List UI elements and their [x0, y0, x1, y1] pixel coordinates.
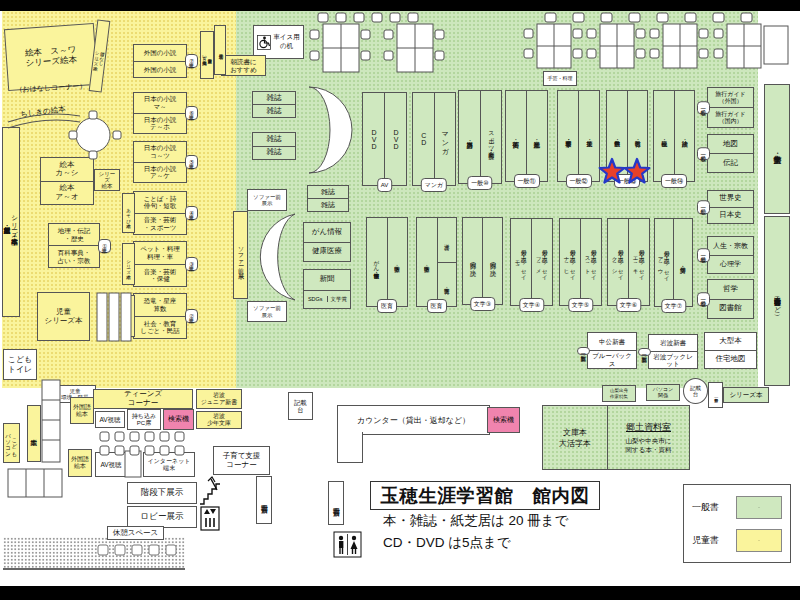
shinkan-tosho-2: 新刊図書: [328, 481, 344, 525]
shelf-ippan-11-col-0: 芸術・美術: [506, 91, 526, 181]
kisaidai-left-label: 記載 台: [289, 393, 312, 419]
chuko-shinsho: 中公新書ブルーバックス一般新書: [587, 332, 637, 369]
zasshi-rack-3-cell-0: 雑誌: [308, 186, 348, 198]
gaikokugo-ehon-2: 外国語 絵本: [68, 449, 92, 477]
shelf-ippan-10-col-0: 日本語・外国語: [459, 91, 480, 183]
shelf-iiku-2-tab: 医育: [427, 299, 447, 313]
shelf-travel-guide-tab: 一般⑮: [697, 101, 710, 115]
chuko-shinsho-cell-1: ブルーバックス: [588, 350, 636, 368]
asadoku-osusume: 朝読書に おすすめ: [221, 55, 266, 76]
shelf-bungaku-6-col-0: 日本の小説・エッセイ ク～シ: [608, 219, 628, 305]
ogata-bon-jutaku: 大型本住宅地図: [704, 332, 757, 369]
shelf-ippan-12-col-0: 手芸・料理・家事: [558, 91, 578, 181]
shelf-pet-side-label: シリーズ絵本: [122, 243, 135, 285]
shelf-travel-guide: 旅行ガイド （外国）旅行ガイド （国内）一般⑮: [707, 87, 754, 128]
loan-limit-av: CD・DVD は5点まで: [383, 534, 511, 552]
shelf-ippan-10: 日本語・外国語スポーツ・音楽・演劇一般⑩: [458, 90, 502, 184]
iwanami-junior-label: 岩波 ジュニア新書: [197, 390, 241, 408]
gaikokugo-ehon-1: 外国語 絵本: [70, 397, 94, 424]
shelf-foreign-novels-child-tab: 児童⑦: [185, 54, 198, 68]
shelf-travel-guide-cell-0: 旅行ガイド （外国）: [708, 88, 753, 107]
zasshi-rack-3: 雑誌雑誌: [307, 185, 349, 212]
shinkan-tosho-2-label: 新刊図書: [329, 482, 343, 524]
series-bon-green-label: シリーズ本: [724, 388, 768, 402]
kyodo-room-desc: 山梨や中央市に 関する本・資料: [626, 437, 672, 455]
shelf-kyoryu-tab: 児童②: [185, 309, 198, 323]
shelf-pet-tab: 児童③: [185, 257, 198, 271]
shelf-jinsei-cell-1: 心理学: [708, 255, 753, 274]
sofa-mae-tenji-1-label: ソファー前 展示: [248, 190, 286, 210]
shelf-bungaku-5: 日本の小説・エッセイ ナ～ヒ日本の小説・エッセイ ス～ト文学⑤: [559, 218, 602, 306]
kaidan-shita-tenji-label: 階段下展示: [128, 483, 196, 503]
sofa-mae-tenji-1: ソファー前 展示: [247, 189, 287, 211]
bottom-letterbox-bar: [0, 586, 800, 600]
shelf-ippan-14-tab: 一般⑭: [661, 174, 687, 188]
shelf-pet-cell-1: 音楽・芸術 ・保健: [134, 264, 186, 287]
chuko-shinsho-tab: 一般新書: [577, 347, 590, 355]
shelf-jp-novels-ma-cell-0: 日本の小説 マ～: [134, 93, 186, 113]
shelf-sekaishi-cell-1: 日本史: [708, 207, 753, 224]
internet-tanmatsu-label: インターネット 端末: [144, 453, 194, 476]
shelf-series-tenji-label: シリーズ本・点字絵本・布絵本・ 紙芝居・大型紙芝居・大型絵本: [3, 128, 19, 316]
kyukei-space: 休憩スペース: [107, 526, 164, 540]
shelf-jp-novels-ko: 日本の小説 コ～ツ日本の小説 ア～ケ児童⑤: [133, 141, 187, 183]
shelf-jp-novels-ko-tab: 児童⑤: [185, 155, 198, 169]
shelf-bungaku-4: 日本の小説・エッセイ モ～日本の小説・エッセイ フ～メ文学④: [510, 218, 553, 306]
shelf-kotoba-side-label: あそび絵本: [122, 193, 135, 233]
shelf-bungaku-7-col-0: 日本の小説・エッセイ ア～ウ: [655, 219, 673, 306]
shelf-ippan-10-col-1: スポーツ・音楽・演劇: [480, 91, 502, 183]
sanko-tosho: 参考図書（図鑑・辞書など）: [764, 216, 790, 386]
shelf-iiku-2-subcell-0: 洋書: [438, 218, 456, 262]
yamanashi-tokushu: 山梨出身 作家特集: [602, 385, 636, 402]
shelf-tetsugaku: 哲学図書館一般⑲: [707, 279, 754, 319]
iwanami-shinsho-cell-0: 岩波新書: [649, 335, 697, 351]
lobby-tenji: ロビー展示: [127, 506, 197, 528]
shelf-jp-novels-ko-cell-1: 日本の小説 ア～ケ: [134, 162, 186, 183]
zasshi-rack-2-cell-0: 雑誌: [253, 133, 295, 146]
shelf-kyoryu: 恐竜・星座 算数社会・教育 しごと・民話児童②児童大型本: [133, 293, 187, 339]
kodomo-toilet: こども トイレ: [3, 349, 37, 380]
gan-kenko: がん情報健康医療: [303, 222, 351, 262]
shelf-jp-novels-ma-tab: 児童⑥: [185, 106, 198, 120]
jidou-meisaku-label: 児童名作: [215, 26, 225, 74]
iwanami-shonen: 岩波 少年文庫: [196, 411, 242, 429]
shelf-iiku-1: がん情報・医療・医学医療・医学医育: [366, 217, 408, 307]
internet-tanmatsu: インターネット 端末: [143, 452, 195, 477]
shelf-bungaku-4-col-0: 日本の小説・エッセイ モ～: [511, 219, 531, 305]
kensakuki-2: 検索機: [487, 407, 520, 433]
zasshi-rack-1-cell-1: 雑誌: [253, 104, 295, 117]
shelf-foreign-novels-child: 外国の小説外国の小説児童⑦: [133, 44, 187, 78]
av-shicho-2: AV視聴: [95, 452, 127, 477]
shelf-chiri-tab: 児童①: [98, 239, 111, 253]
shelf-kotoba-cell-1: 音楽・芸術 ・スポーツ: [134, 213, 186, 235]
sofa-mae-tenji-strip-label: ソファー前 展示: [234, 212, 247, 298]
bungaku-zenshu-label: 文学全集・叢書: [765, 85, 789, 213]
jidou-series-bon-label: 児童 シリーズ本: [38, 293, 89, 340]
shelf-ippan-13: 数学・自然科学民俗・教育一般⑬: [606, 90, 648, 182]
kisaidai-circle-label: 記載 台: [684, 379, 707, 403]
zasshi-rack-1-cell-0: 雑誌: [253, 92, 295, 104]
shelf-cd-manga-col-1: マンガ: [434, 93, 456, 185]
gan-kenko-cell-0: がん情報: [304, 223, 350, 242]
shelf-ippan-11: 芸術・美術観光・産業一般⑪: [505, 90, 548, 182]
shinbun-sdgs-cell-1: SDGs文学賞: [304, 290, 350, 309]
shinbun-sdgs-subcell-1: 文学賞: [327, 296, 351, 302]
shelf-kotoba-cell-0: ことば・詩 俳句・短歌: [134, 192, 186, 213]
zasshi-rack-3-cell-1: 雑誌: [308, 198, 348, 211]
shelf-bungaku-5-col-1: 日本の小説・エッセイ ス～ト: [580, 219, 601, 305]
shelf-iiku-1-col-1: 医療・医学: [387, 218, 408, 306]
shelf-ehon-ka: 絵本 カ～シ絵本 ア～オ: [40, 157, 94, 205]
kensakuki-1: 検索機: [163, 409, 194, 430]
teens-corner-label: ティーンズ コーナー: [94, 390, 192, 408]
shelf-sekaishi: 世界史日本史一般⑰: [707, 190, 754, 224]
shelf-kotoba: ことば・詩 俳句・短歌音楽・芸術 ・スポーツ児童④あそび絵本: [133, 191, 187, 235]
shelf-dvd-col-1: DVD: [384, 93, 406, 185]
shelf-ehon-ka-cell-0: 絵本 カ～シ: [41, 158, 93, 181]
shelf-travel-guide-cell-1: 旅行ガイド （国内）: [708, 107, 753, 127]
jidou-shinsho: 児童新書 青い鳥文庫・他: [200, 31, 214, 79]
wheelchair-icon: [257, 35, 271, 50]
service-counter-return: [337, 432, 363, 463]
series-bon-green: シリーズ本: [723, 387, 769, 403]
shelf-jinsei-tab: 一般⑱: [697, 248, 710, 262]
shelf-ippan-12: 手芸・料理・家事技術・工業一般⑫: [557, 90, 600, 182]
iwanami-shonen-label: 岩波 少年文庫: [197, 412, 241, 428]
bungaku-zenshu: 文学全集・叢書: [764, 84, 790, 214]
restroom-icon: [334, 532, 361, 557]
shelf-jinsei: 人生・宗教心理学一般⑱: [707, 236, 754, 274]
kodomo-pc: こども パソコン: [3, 423, 20, 463]
shelf-tetsugaku-cell-0: 哲学: [708, 280, 753, 299]
shelf-iiku-1-tab: 医育: [377, 299, 397, 313]
zasshi-rack-2: 雑誌雑誌: [252, 132, 296, 160]
kodomo-pc-label: こども パソコン: [4, 424, 19, 462]
av-shicho-1: AV視聴: [95, 411, 125, 428]
iwanami-shinsho: 岩波新書岩波ブックレット一般新書: [648, 334, 698, 369]
wheelchair-desk: 車イス用 の机: [253, 25, 304, 59]
stairs-icon: [200, 477, 220, 504]
shelf-iiku-2: 医療・医学洋書育児・医学医育: [416, 217, 457, 307]
rest-space-floor: [3, 537, 185, 570]
shelf-kyoryu-cell-0: 恐竜・星座 算数: [134, 294, 186, 316]
iwanami-junior: 岩波 ジュニア新書: [196, 389, 242, 409]
kaidan-shita-tenji: 階段下展示: [127, 482, 197, 504]
ogata-bon-jutaku-cell-0: 大型本: [705, 333, 756, 350]
yamanashi-tokushu-label: 山梨出身 作家特集: [603, 386, 635, 401]
kyodo-room-title: 郷土資料室: [626, 421, 671, 434]
pc-kankei: パソコン 関係: [646, 384, 680, 401]
legend-row: 児童書: [692, 529, 782, 552]
shelf-bungaku-7: 日本の小説・エッセイ ア～ウ文学・俳句・詩文学⑦: [654, 218, 693, 307]
shelf-bungaku-3-col-0: 外国の小説: [463, 218, 482, 304]
elevator-icon: [201, 507, 219, 530]
zasshi-rack-1: 雑誌雑誌: [252, 91, 296, 118]
loan-limit-books: 本・雑誌・紙芝居は 20 冊まで: [383, 512, 568, 530]
ippan-shinsho-mini-label: 一般新書: [709, 383, 722, 407]
legend-swatch: [736, 496, 782, 519]
kisaidai-circle: 記載 台: [683, 378, 708, 404]
shelf-dvd-tab: AV: [377, 178, 393, 192]
shelf-bungaku-6-col-1: 日本の小説・エッセイ エ～キ: [628, 219, 649, 305]
shinbun-sdgs: 新聞SDGs文学賞: [303, 269, 351, 309]
lobby-tenji-label: ロビー展示: [128, 507, 196, 527]
shelf-tetsugaku-cell-1: 図書館: [708, 299, 753, 319]
shelf-pet-cell-0: ペット・料理 料理・車: [134, 242, 186, 264]
series-ehon-small-label: シリーズ 絵本: [95, 170, 119, 190]
shelf-ehon-ka-cell-1: 絵本 ア～オ: [41, 181, 93, 205]
kosodate-corner-label: 子育て支援 コーナー: [214, 447, 269, 474]
shelf-bungaku-5-col-0: 日本の小説・エッセイ ナ～ヒ: [560, 219, 580, 305]
shelf-kyoryu-side-label: 児童大型本: [122, 295, 135, 337]
shelf-ippan-14: 税金・福祉政治・法律一般⑭: [653, 90, 695, 182]
shelf-bungaku-4-tab: 文学④: [519, 298, 544, 312]
asadoku-osusume-label: 朝読書に おすすめ: [222, 56, 265, 75]
jidou-shinsho-label: 児童新書 青い鳥文庫・他: [201, 32, 213, 78]
shelf-jp-novels-ma: 日本の小説 マ～日本の小説 テ～ホ児童⑥: [133, 92, 187, 134]
shelf-dvd: DVDDVDAV: [362, 92, 407, 186]
shelf-bungaku-4-col-1: 日本の小説・エッセイ フ～メ: [531, 219, 552, 305]
jidou-meisaku: 児童名作: [214, 25, 226, 75]
shelf-jp-novels-ma-cell-1: 日本の小説 テ～ホ: [134, 113, 186, 134]
sofa-mae-tenji-2: ソファー前 展示: [247, 301, 287, 322]
ippan-shinsho-mini: 一般新書: [708, 382, 723, 408]
shelf-jinsei-cell-0: 人生・宗教: [708, 237, 753, 255]
shelf-bungaku-3-tab: 文学③: [470, 297, 495, 311]
shugei-ryori-mini-label: 手芸・料理: [544, 72, 576, 85]
shelf-iiku-1-col-0: がん情報・医療・医学: [367, 218, 387, 306]
map-title: 玉穂生涯学習館 館内図: [370, 481, 600, 510]
bunko-daikatsuji-shelf: 文庫本 大活字本: [543, 406, 608, 469]
iwanami-shinsho-tab: 一般新書: [638, 348, 651, 356]
shelf-ippan-13-col-0: 数学・自然科学: [607, 91, 627, 181]
shelf-foreign-novels-child-cell-1: 外国の小説: [134, 61, 186, 78]
shelf-iiku-2-col-1: 洋書育児・医学: [437, 218, 456, 306]
legend-row: 一般書: [692, 496, 782, 519]
gaikokugo-ehon-1-label: 外国語 絵本: [71, 398, 93, 423]
legend-label: 一般書: [692, 501, 719, 514]
top-letterbox-bar: [0, 0, 800, 11]
shelf-ippan-12-col-1: 技術・工業: [578, 91, 599, 181]
shelf-ippan-11-col-1: 観光・産業: [526, 91, 547, 181]
shinkan-tosho-1-label: 新刊図書: [257, 477, 271, 523]
lobby-couch: [8, 469, 62, 497]
shelf-cd-manga: CDマンガマンガ: [412, 92, 456, 186]
kensakuki-2-label: 検索機: [488, 408, 519, 432]
counter-label: カウンター（貸出・返却など）: [357, 415, 470, 426]
sanko-tosho-label: 参考図書（図鑑・辞書など）: [765, 217, 789, 385]
shelf-ippan-12-tab: 一般⑫: [566, 174, 592, 188]
shelf-ippan-13-tab: 一般⑬: [614, 174, 640, 188]
shelf-jp-novels-ko-cell-0: 日本の小説 コ～ツ: [134, 142, 186, 162]
shelf-chizu-denki-cell-0: 地図: [708, 135, 753, 153]
iwanami-shinsho-cell-1: 岩波ブックレット: [649, 351, 697, 368]
legend-swatch: [736, 529, 782, 552]
shugei-ryori-mini: 手芸・料理: [543, 71, 577, 86]
kodomo-toilet-label: こども トイレ: [4, 350, 36, 379]
jidou-series-bon: 児童 シリーズ本: [37, 292, 90, 341]
shelf-ippan-10-tab: 一般⑩: [467, 176, 492, 190]
shinkan-tosho-1: 新刊図書: [256, 476, 272, 524]
chuko-shinsho-cell-0: 中公新書: [588, 333, 636, 350]
shelf-sekaishi-cell-0: 世界史: [708, 191, 753, 207]
shelf-cd-manga-col-0: CD: [413, 93, 434, 185]
local-materials-room: 文庫本 大活字本 郷土資料室 山梨や中央市に 関する本・資料: [542, 405, 690, 470]
service-counter: カウンター（貸出・返却など）: [337, 405, 490, 435]
ogata-ehon-label: 大型絵本: [28, 406, 40, 461]
shelf-bungaku-6: 日本の小説・エッセイ ク～シ日本の小説・エッセイ エ～キ文学⑥: [607, 218, 650, 306]
shelf-chizu-denki: 地図伝記一般⑯: [707, 134, 754, 173]
corner-table: [764, 26, 788, 64]
sofa-mae-tenji-strip: ソファー前 展示: [233, 211, 248, 299]
kosodate-corner: 子育て支援 コーナー: [213, 446, 270, 475]
shelf-foreign-novels-child-cell-0: 外国の小説: [134, 45, 186, 61]
shelf-bungaku-7-tab: 文学⑦: [661, 299, 686, 313]
series-ehon-small: シリーズ 絵本: [94, 169, 120, 191]
mochikomi-pc-seat-label: 持ち込み PC席: [128, 410, 160, 429]
shinbun-sdgs-subcell-0: SDGs: [304, 296, 327, 302]
shelf-sekaishi-tab: 一般⑰: [697, 200, 710, 214]
shelf-chiri-cell-1: 百科事典・ 占い・宗教: [49, 245, 99, 267]
library-floor-map: 車イス用 の机 カウンター（貸出・返却など） 文庫本 大活字本 郷土資料室 山梨…: [0, 0, 800, 600]
ogata-bon-jutaku-cell-1: 住宅地図: [705, 350, 756, 368]
sofa-mae-tenji-2-label: ソファー前 展示: [248, 302, 286, 321]
shelf-ippan-14-col-1: 政治・法律: [674, 91, 695, 181]
shelf-pet: ペット・料理 料理・車音楽・芸術 ・保健児童③シリーズ絵本: [133, 241, 187, 287]
av-shicho-1-label: AV視聴: [96, 412, 124, 427]
shelf-bungaku-5-tab: 文学⑤: [568, 298, 593, 312]
av-shicho-2-label: AV視聴: [96, 453, 126, 476]
shelf-bungaku-7-col-1: 文学・俳句・詩: [673, 219, 692, 306]
shelf-bungaku-3: 外国の小説外国の小説文学③: [462, 217, 503, 305]
shelf-chiri: 地理・伝記 ・歴史百科事典・ 占い・宗教児童①: [48, 223, 100, 268]
gaikokugo-ehon-2-label: 外国語 絵本: [69, 450, 91, 476]
legend: 一般書児童書: [683, 484, 791, 563]
shinbun-sdgs-cell-0: 新聞: [304, 270, 350, 290]
pc-kankei-label: パソコン 関係: [647, 385, 679, 400]
mochikomi-pc-seat: 持ち込み PC席: [127, 409, 161, 430]
shelf-kyoryu-cell-1: 社会・教育 しごと・民話: [134, 316, 186, 339]
shelf-bungaku-6-tab: 文学⑥: [616, 298, 641, 312]
kisaidai-left: 記載 台: [288, 392, 313, 420]
shelf-tetsugaku-tab: 一般⑲: [697, 292, 710, 306]
gan-kenko-cell-1: 健康医療: [304, 242, 350, 262]
teens-corner: ティーンズ コーナー: [93, 389, 193, 409]
shelf-dvd-col-0: DVD: [363, 93, 384, 185]
shelf-cd-manga-tab: マンガ: [421, 178, 447, 192]
kensakuki-1-label: 検索機: [164, 410, 193, 429]
zasshi-rack-2-cell-1: 雑誌: [253, 146, 295, 160]
shelf-iiku-2-col-0: 医療・医学: [417, 218, 437, 306]
shelf-chiri-cell-0: 地理・伝記 ・歴史: [49, 224, 99, 245]
shelf-bungaku-3-col-1: 外国の小説: [482, 218, 502, 304]
kyukei-space-label: 休憩スペース: [108, 527, 163, 539]
ogata-ehon: 大型絵本: [27, 405, 41, 462]
shelf-ippan-14-col-0: 税金・福祉: [654, 91, 674, 181]
shelf-kotoba-tab: 児童④: [185, 206, 198, 220]
shelf-series-tenji: シリーズ本・点字絵本・布絵本・ 紙芝居・大型紙芝居・大型絵本: [2, 127, 20, 317]
shelf-ippan-11-tab: 一般⑪: [514, 174, 540, 188]
shelf-chizu-denki-tab: 一般⑯: [697, 147, 710, 161]
shelf-chizu-denki-cell-1: 伝記: [708, 153, 753, 172]
legend-label: 児童書: [692, 534, 719, 547]
wheelchair-desk-label: 車イス用 の机: [273, 33, 299, 51]
shelf-ippan-13-col-1: 民俗・教育: [627, 91, 648, 181]
